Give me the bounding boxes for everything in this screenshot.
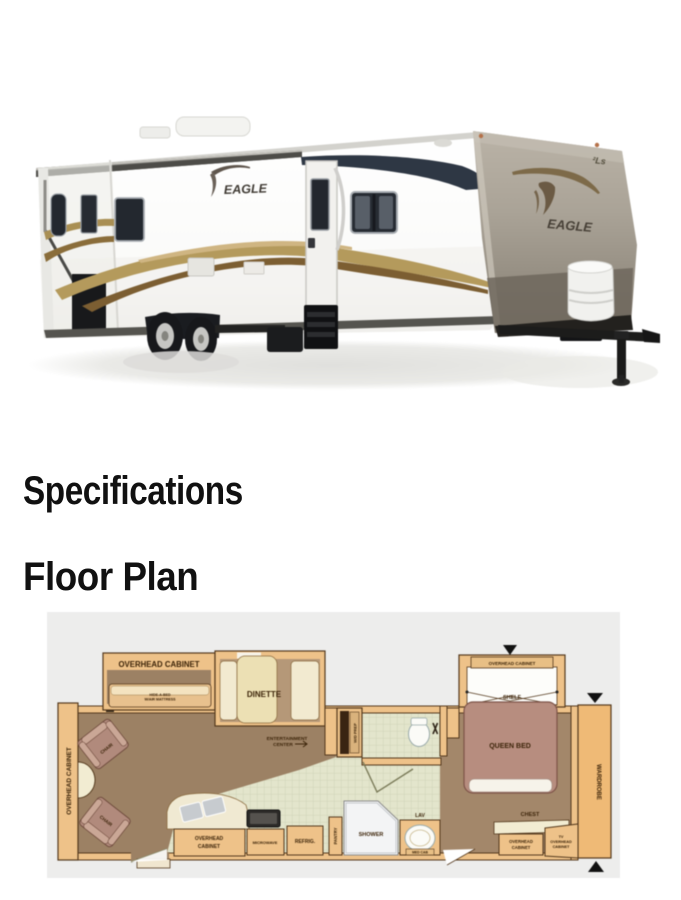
svg-text:WARDROBE: WARDROBE	[595, 764, 601, 800]
svg-text:EAGLE: EAGLE	[224, 181, 268, 197]
svg-text:CABINET: CABINET	[198, 844, 220, 850]
svg-text:OVERHEAD: OVERHEAD	[550, 840, 572, 844]
svg-text:PANTRY: PANTRY	[333, 827, 338, 844]
svg-text:CABINET: CABINET	[512, 845, 531, 850]
svg-text:W/D PREP: W/D PREP	[353, 723, 358, 743]
svg-text:MICROWAVE: MICROWAVE	[253, 840, 278, 845]
svg-text:LAV: LAV	[415, 813, 425, 819]
svg-text:CABINET: CABINET	[553, 845, 571, 849]
svg-text:SHOWER: SHOWER	[359, 832, 384, 838]
svg-text:ENTERTAINMENT: ENTERTAINMENT	[267, 736, 308, 742]
svg-text:QUEEN BED: QUEEN BED	[489, 743, 531, 750]
svg-text:HIDE-A-BED: HIDE-A-BED	[149, 693, 171, 697]
svg-text:CHEST: CHEST	[521, 812, 540, 818]
svg-text:OVERHEAD: OVERHEAD	[195, 836, 224, 842]
svg-text:DINETTE: DINETTE	[247, 690, 282, 699]
svg-text:OVERHEAD CABINET: OVERHEAD CABINET	[489, 661, 536, 666]
svg-text:OVERHEAD CABINET: OVERHEAD CABINET	[66, 747, 73, 815]
svg-text:SHELF: SHELF	[503, 695, 522, 701]
svg-text:OVERHEAD CABINET: OVERHEAD CABINET	[118, 660, 199, 669]
svg-text:OVERHEAD: OVERHEAD	[509, 839, 533, 844]
svg-text:CENTER: CENTER	[273, 742, 293, 748]
svg-text:REFRIG.: REFRIG.	[295, 839, 316, 845]
svg-text:TV: TV	[559, 835, 564, 839]
svg-text:²Ls: ²Ls	[592, 155, 606, 166]
svg-text:MED CAB: MED CAB	[412, 851, 428, 855]
svg-text:W/AIR MATTRESS: W/AIR MATTRESS	[144, 698, 176, 702]
